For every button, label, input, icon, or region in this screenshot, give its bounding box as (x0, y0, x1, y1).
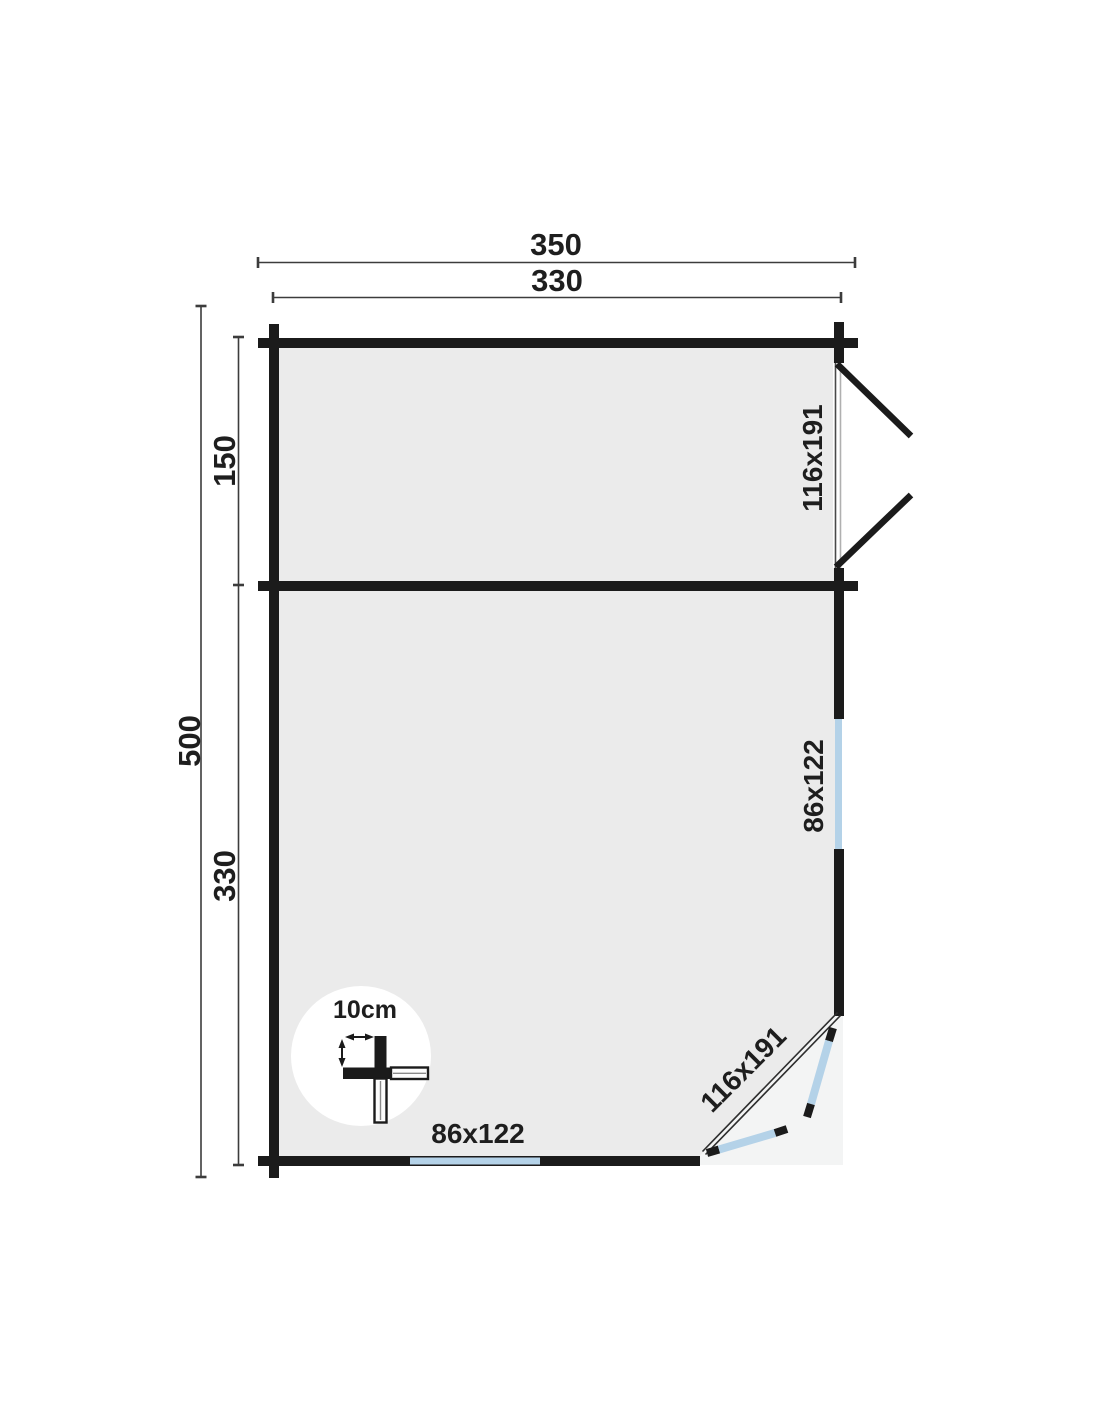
front-window (410, 1158, 540, 1165)
left-wall (269, 324, 279, 1178)
main-room-depth-label: 330 (207, 850, 242, 902)
top-wall (258, 338, 858, 348)
porch-door-label: 116x191 (797, 404, 828, 511)
right-wall-middle (834, 568, 844, 719)
corner-door-lower-leaf-cap1 (707, 1150, 719, 1154)
divider-wall (258, 581, 858, 591)
joint-solid-horizontal (343, 1068, 391, 1080)
scale-thickness-label: 10cm (333, 996, 397, 1024)
corner-door-upper-leaf-cap2 (807, 1104, 811, 1117)
porch-depth-label: 150 (207, 435, 242, 487)
overall-depth-label: 500 (172, 715, 207, 767)
overall-width-label: 350 (530, 227, 582, 262)
side-window-label: 86x122 (798, 739, 829, 832)
corner-door-upper-leaf-cap1 (829, 1028, 833, 1041)
front-window-label: 86x122 (431, 1118, 524, 1149)
right-wall-lower (834, 849, 844, 1016)
porch-floor (274, 343, 839, 586)
inner-width-label: 330 (531, 263, 583, 298)
floor-plan: 350 330 500 150 330 116x191 86x122 86x12… (0, 0, 1100, 1422)
corner-door-lower-leaf-cap2 (775, 1129, 787, 1133)
side-window (835, 719, 842, 849)
right-wall-top-stub (834, 322, 844, 363)
